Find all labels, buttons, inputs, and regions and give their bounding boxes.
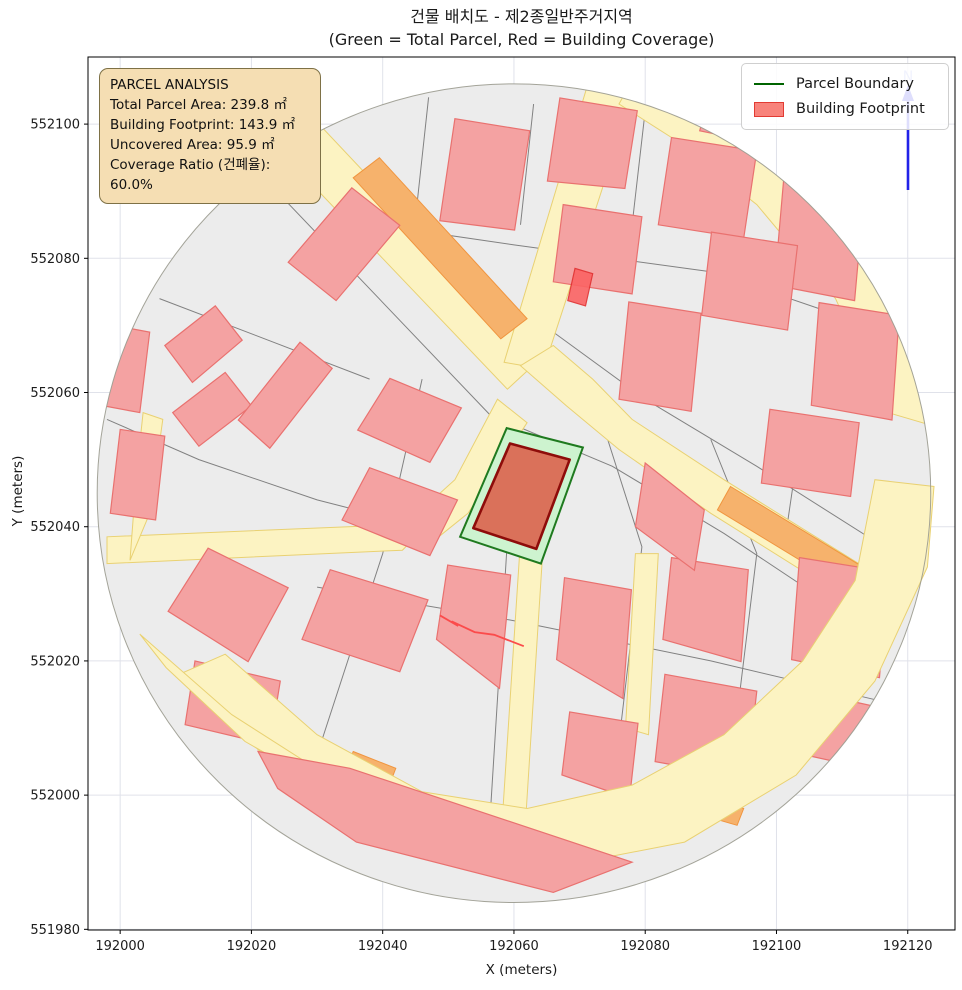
legend-label: Parcel Boundary [796, 76, 914, 92]
x-tick-label: 192080 [620, 939, 670, 954]
info-line-footprint: Building Footprint: 143.9 ㎡ [110, 116, 310, 136]
info-line-heading: PARCEL ANALYSIS [110, 76, 310, 96]
building [440, 119, 530, 230]
x-tick-label: 192000 [95, 939, 145, 954]
building [811, 303, 899, 420]
y-tick-label: 552000 [30, 789, 80, 804]
chart-title: 건물 배치도 - 제2종일반주거지역 (Green = Total Parcel… [88, 6, 955, 51]
title-line-1: 건물 배치도 - 제2종일반주거지역 [88, 6, 955, 29]
legend-item-parcel-boundary: Parcel Boundary [754, 76, 936, 92]
legend-label: Building Footprint [796, 101, 925, 117]
building [553, 205, 642, 294]
x-tick-label: 192020 [227, 939, 277, 954]
y-tick-label: 552100 [30, 118, 80, 133]
info-line-uncovered: Uncovered Area: 95.9 ㎡ [110, 136, 310, 156]
building [547, 98, 637, 189]
x-tick-label: 192040 [358, 939, 408, 954]
building [761, 409, 859, 496]
title-line-2: (Green = Total Parcel, Red = Building Co… [88, 29, 955, 52]
x-tick-label: 192060 [489, 939, 539, 954]
x-axis-label: X (meters) [88, 962, 955, 978]
y-tick-label: 552080 [30, 252, 80, 267]
building [658, 138, 757, 239]
info-line-total-area: Total Parcel Area: 239.8 ㎡ [110, 96, 310, 116]
x-tick-label: 192120 [883, 939, 933, 954]
parcel-analysis-box: PARCEL ANALYSIS Total Parcel Area: 239.8… [99, 68, 321, 204]
y-tick-label: 552060 [30, 386, 80, 401]
figure: N192000192020192040192060192080192100192… [0, 0, 962, 990]
y-tick-label: 552040 [30, 520, 80, 535]
building [619, 302, 701, 411]
building-footprint-patch-swatch [754, 102, 784, 117]
y-tick-label: 551980 [30, 923, 80, 938]
parcel-boundary-line-swatch [754, 83, 784, 85]
y-tick-label: 552020 [30, 654, 80, 669]
y-axis-label: Y (meters) [10, 436, 26, 546]
legend-item-building-footprint: Building Footprint [754, 101, 936, 117]
legend: Parcel Boundary Building Footprint [741, 63, 949, 130]
building [702, 232, 798, 330]
building [110, 429, 165, 520]
x-tick-label: 192100 [752, 939, 802, 954]
info-line-coverage: Coverage Ratio (건폐율): 60.0% [110, 156, 310, 196]
